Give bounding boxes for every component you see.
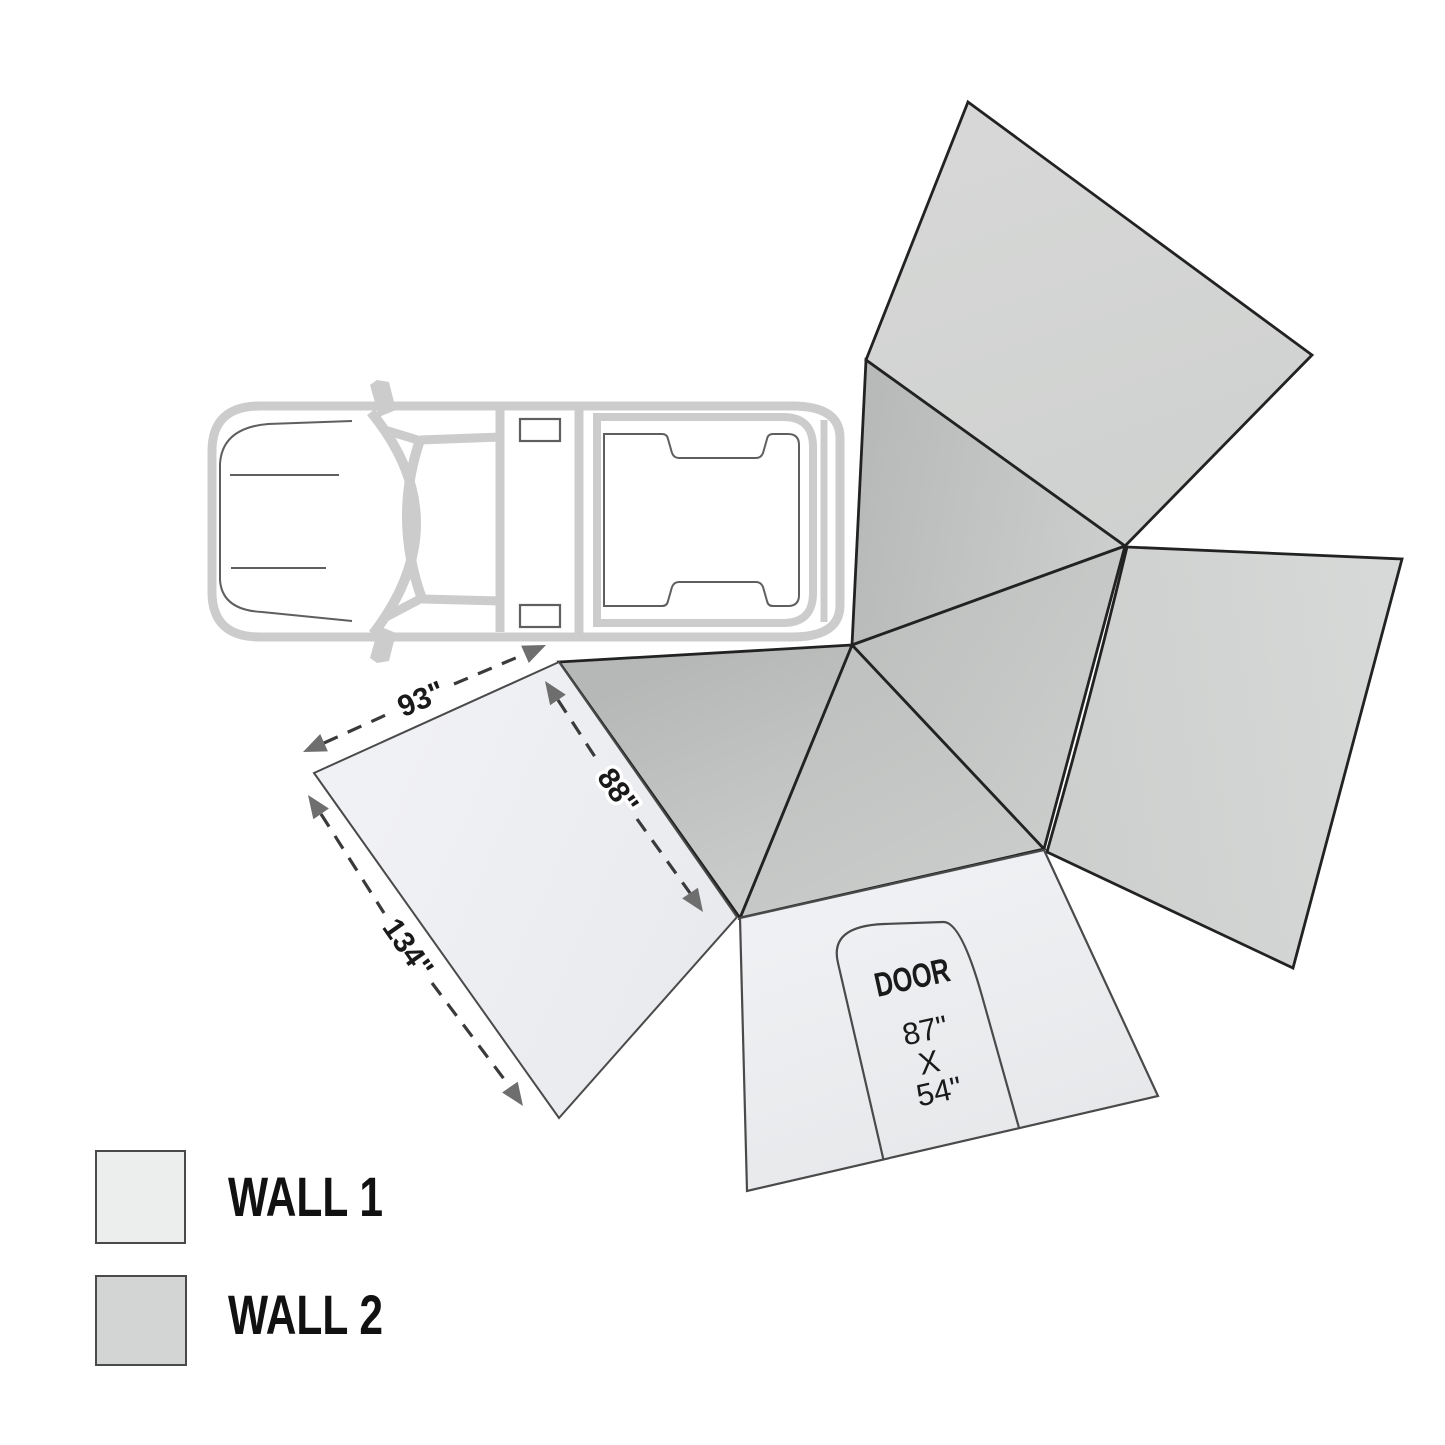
svg-text:WALL 2: WALL 2	[228, 1283, 383, 1346]
svg-text:WALL 1: WALL 1	[228, 1165, 383, 1228]
